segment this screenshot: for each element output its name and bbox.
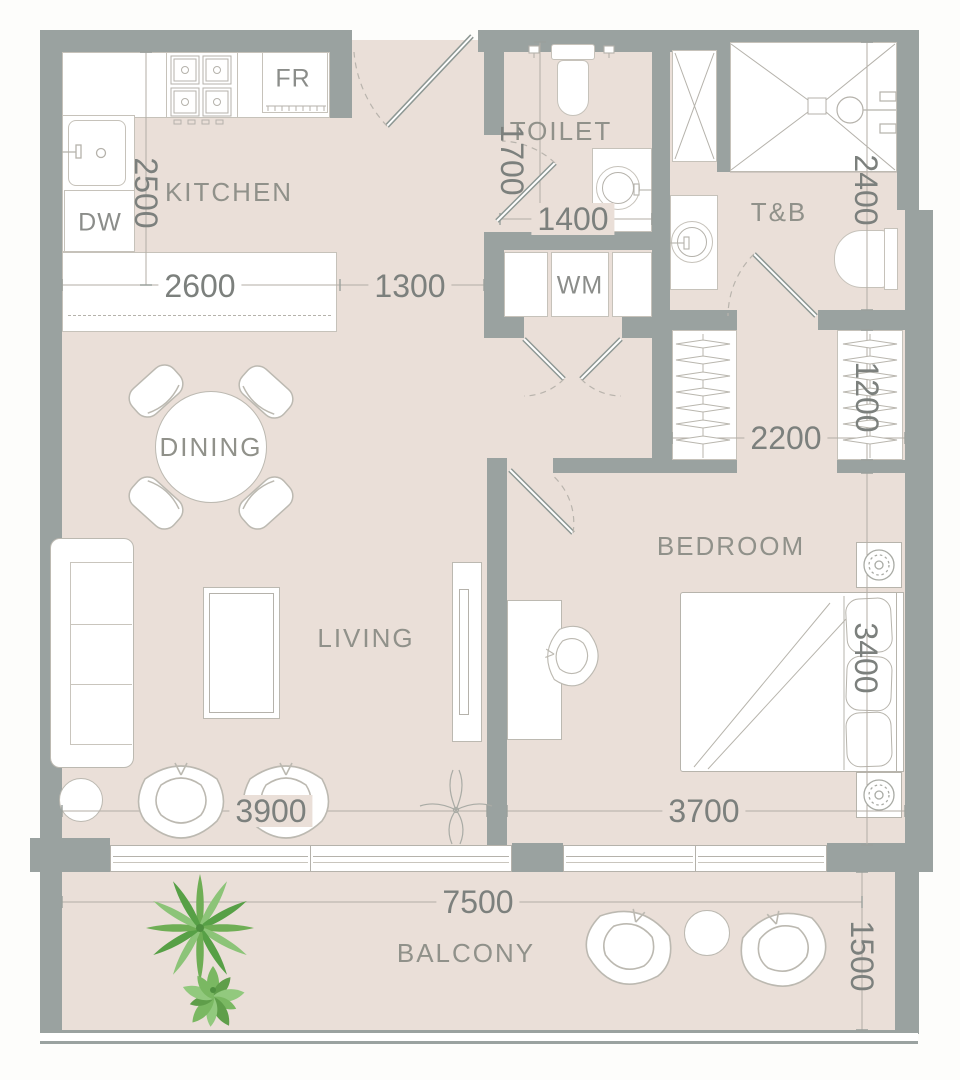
- toilet-wc-tank: [551, 44, 595, 60]
- room-label-kitchen: KITCHEN: [165, 179, 293, 205]
- dim-toilet-depth: 1700: [496, 124, 528, 195]
- sofa-cushion-line-1: [70, 624, 132, 625]
- bath-wc-bowl: [834, 230, 888, 288]
- shower-cabin: [672, 50, 717, 162]
- sofa-armrest-top-line: [70, 562, 132, 563]
- closet-left: [672, 330, 737, 460]
- dim-kitchen-depth: 2500: [130, 157, 162, 228]
- bedroom-window-right: [695, 845, 827, 872]
- fridge-label: FR: [275, 67, 310, 92]
- toilet-sink-basin: [602, 172, 634, 204]
- wall-top-left: [40, 30, 352, 52]
- wall-balcony-left: [40, 862, 62, 1034]
- toilet-wc-bowl: [557, 60, 589, 116]
- coffee-table-top: [209, 593, 274, 713]
- bath-sink-basin: [677, 227, 707, 257]
- wall-balcony-right: [895, 872, 919, 1034]
- dim-kitchen-counter: 2600: [158, 270, 241, 302]
- living-window-right: [310, 845, 512, 872]
- wall-closet-right-bottom: [837, 460, 905, 473]
- bath-wc-tank: [884, 228, 898, 290]
- wall-bottom-mid-block: [512, 843, 563, 872]
- bed-headboard: [896, 592, 904, 772]
- wall-toilet-bath-divider: [652, 42, 670, 317]
- wall-entry-stub: [330, 42, 352, 118]
- dim-closet-depth: 1200: [851, 361, 883, 432]
- room-label-living: LIVING: [317, 625, 414, 651]
- dim-bedroom-width: 3700: [662, 795, 745, 827]
- dim-entry-corridor: 1300: [368, 270, 451, 302]
- wall-closet-left-column: [652, 310, 672, 473]
- dim-dressing-width: 2200: [744, 422, 827, 454]
- wall-toilet-left: [484, 42, 504, 135]
- island-overhang-line: [68, 315, 331, 316]
- wall-bedroom-top: [553, 458, 654, 473]
- balcony-table: [684, 910, 730, 956]
- wall-shower-cabin: [717, 42, 730, 172]
- laundry-cabinet-right: [612, 252, 652, 317]
- dim-living-width: 3900: [229, 795, 312, 827]
- dim-toilet-width: 1400: [531, 203, 614, 235]
- dim-bedroom-depth: 3400: [850, 622, 882, 693]
- washer-label: WM: [557, 274, 603, 299]
- stove: [166, 52, 238, 118]
- sofa: [50, 538, 134, 768]
- wall-right-lower: [905, 210, 933, 872]
- entry-threshold: [352, 40, 478, 52]
- laundry-cabinet-left: [504, 252, 548, 317]
- nightstand-bottom: [856, 772, 902, 818]
- floor-plan: KITCHEN TOILET T&B DINING LIVING BEDROOM…: [0, 0, 960, 1080]
- sofa-back-line: [70, 562, 71, 744]
- wall-right-upper: [897, 30, 919, 210]
- room-label-dining: DINING: [160, 434, 263, 460]
- kitchen-sink: [68, 120, 126, 186]
- room-label-toilet-bath: T&B: [751, 199, 808, 225]
- bedroom-window-left: [563, 845, 696, 872]
- bed-pillow-3: [845, 711, 893, 768]
- shower-area: [730, 42, 897, 172]
- wall-living-bedroom-divider: [487, 458, 507, 872]
- dim-balcony-width: 7500: [436, 886, 519, 918]
- sofa-armrest-bottom-line: [70, 744, 132, 745]
- sofa-cushion-line-2: [70, 684, 132, 685]
- desk: [507, 600, 562, 740]
- dim-bath-depth: 2400: [850, 154, 882, 225]
- dim-balcony-depth: 1500: [846, 920, 878, 991]
- living-window-left: [110, 845, 311, 872]
- wall-closet-left-bottom: [652, 460, 737, 473]
- dishwasher-label: DW: [78, 211, 122, 236]
- wall-closet-right-top: [837, 315, 905, 330]
- nightstand-top: [856, 542, 902, 588]
- room-label-balcony: BALCONY: [397, 940, 535, 966]
- wall-hall-doors-left: [484, 317, 524, 338]
- balcony-railing: [40, 1030, 918, 1044]
- tv-screen: [459, 589, 469, 715]
- side-table: [59, 778, 103, 822]
- room-label-bedroom: BEDROOM: [657, 533, 805, 559]
